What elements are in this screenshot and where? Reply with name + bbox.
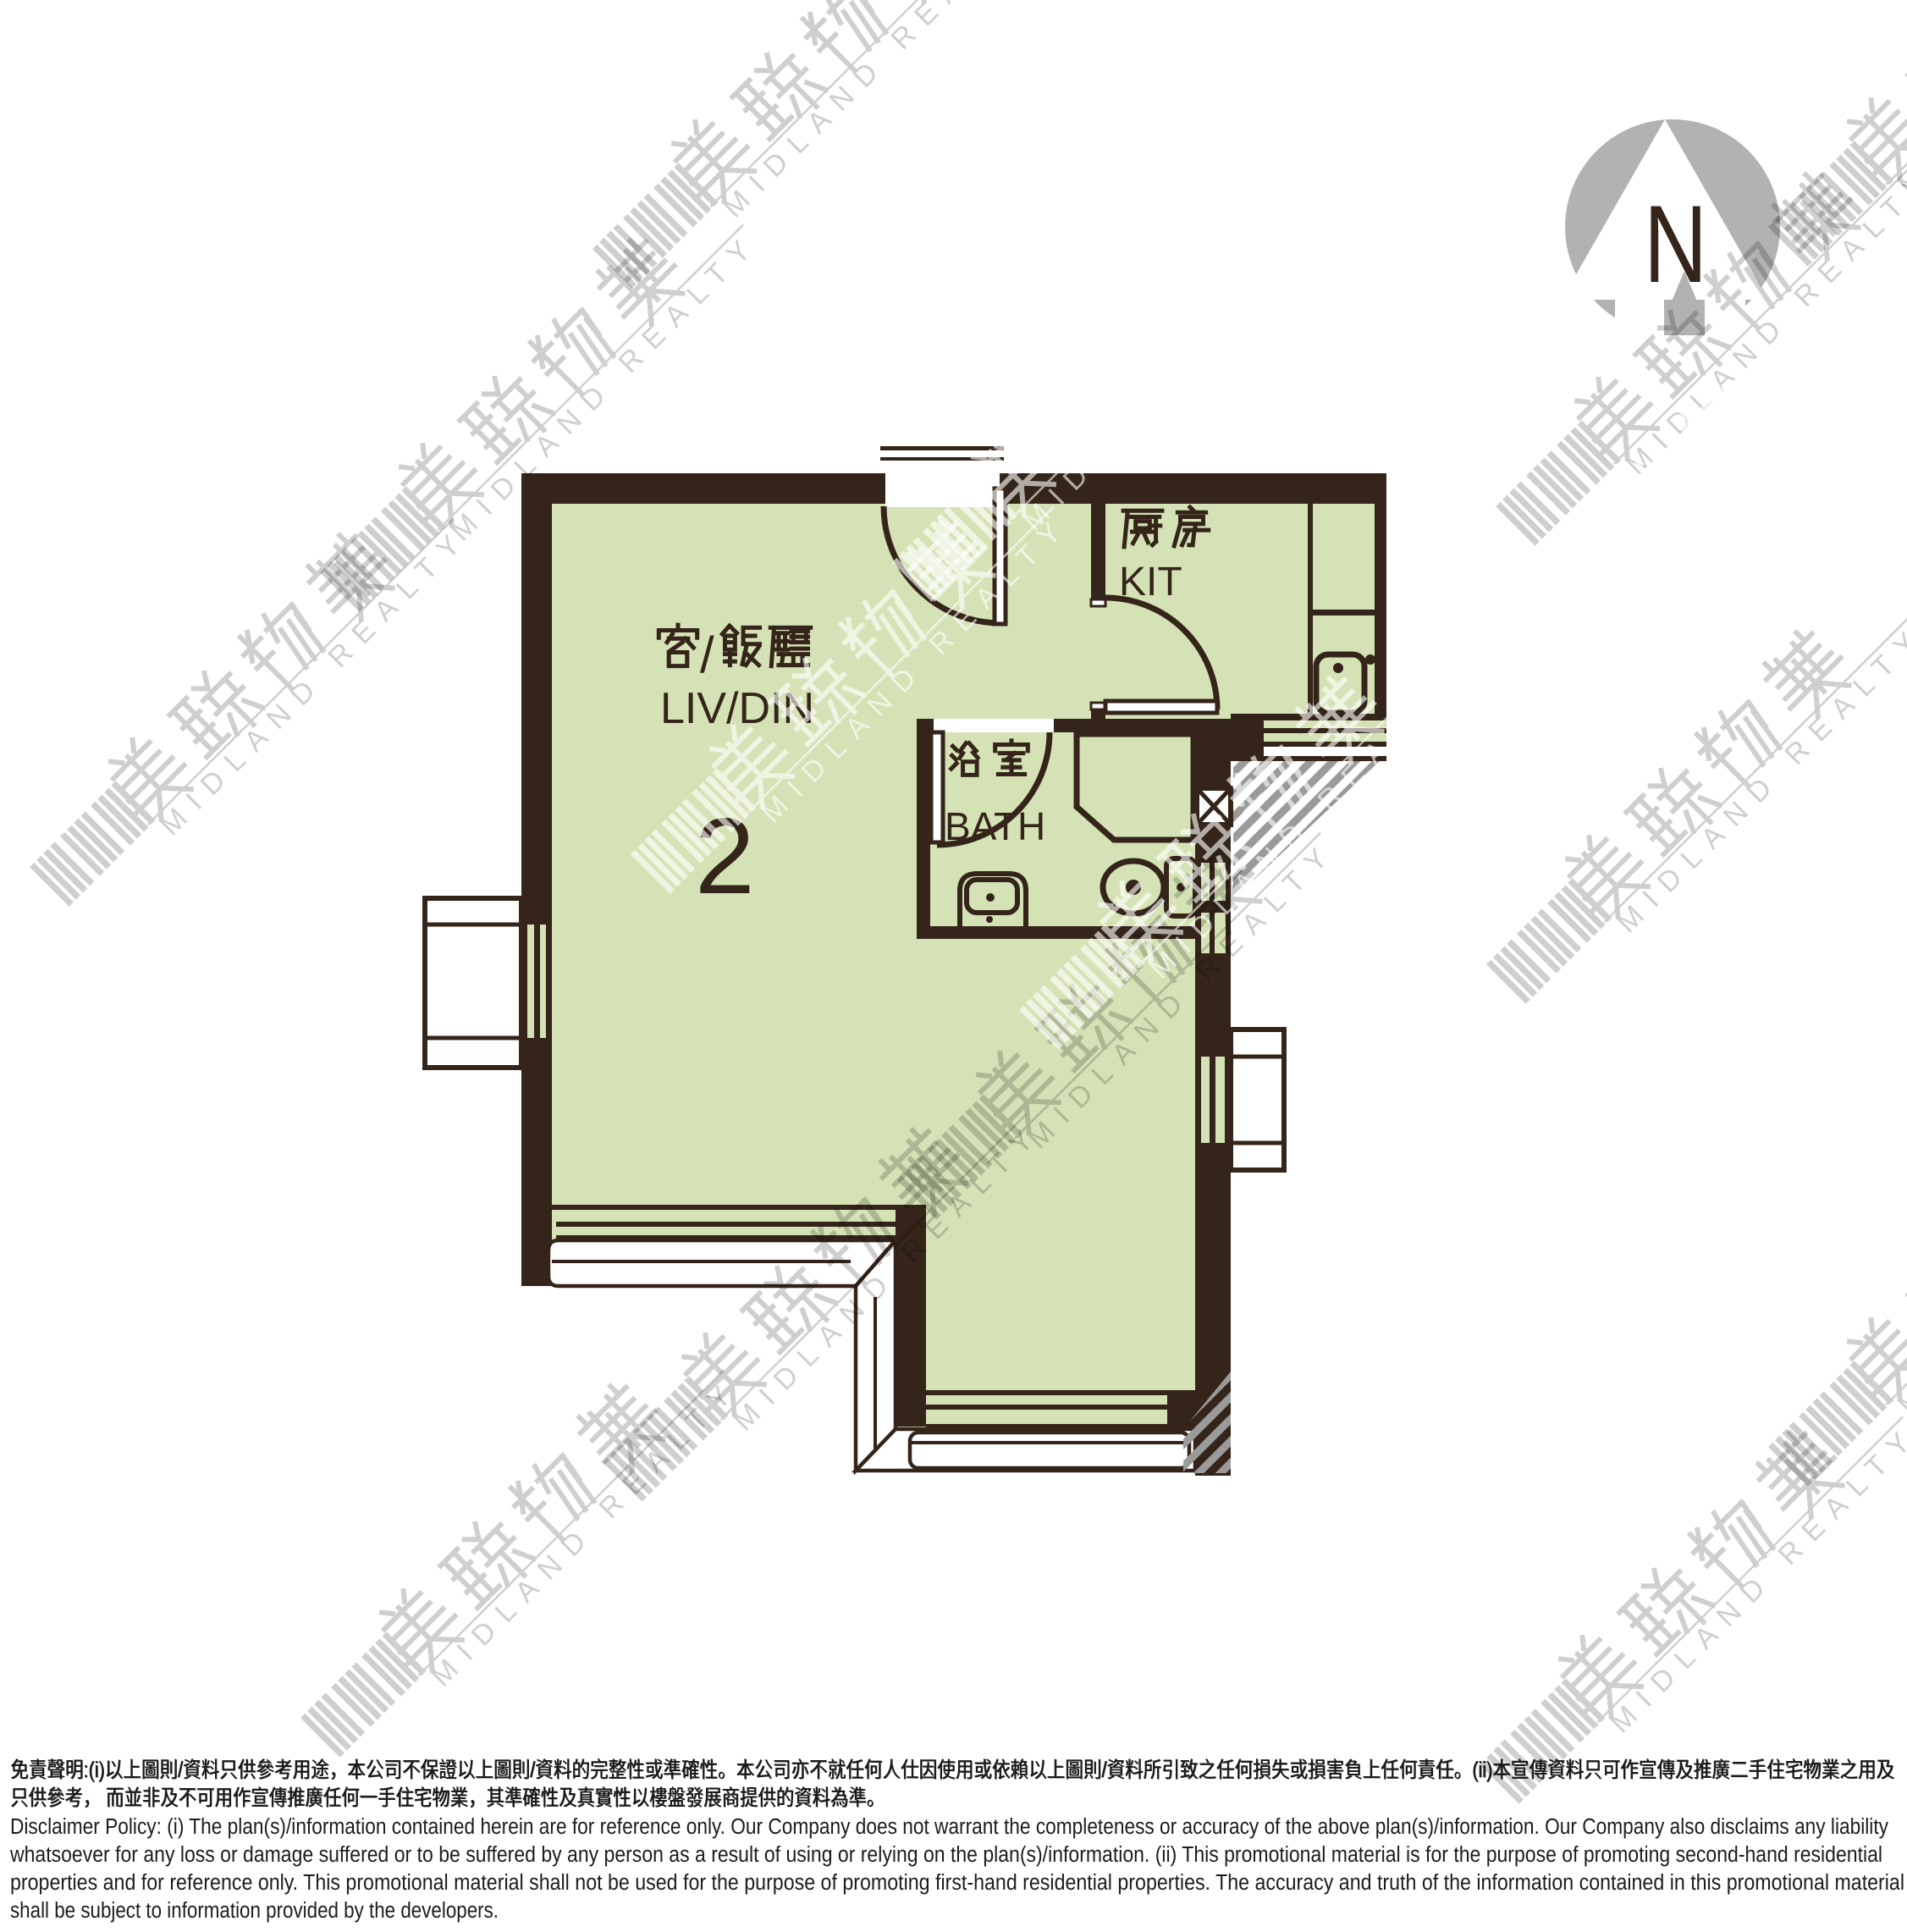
svg-text:MIDLAND REALTY: MIDLAND REALTY xyxy=(1611,617,1907,939)
svg-text:properties and for reference o: properties and for reference only. This … xyxy=(10,1871,1904,1895)
svg-text:MIDLAND REALTY: MIDLAND REALTY xyxy=(1604,1417,1907,1739)
svg-text:MIDLAND REALTY: MIDLAND REALTY xyxy=(717,0,1039,224)
svg-text:MIDLAND REALTY: MIDLAND REALTY xyxy=(154,520,476,842)
svg-text:Disclaimer Policy: (i) The pla: Disclaimer Policy: (i) The plan(s)/infor… xyxy=(10,1815,1888,1839)
svg-text:/: / xyxy=(700,627,714,683)
svg-text:KIT: KIT xyxy=(1119,560,1182,604)
svg-text:N: N xyxy=(1644,182,1707,306)
svg-text:whatsoever for any loss or dam: whatsoever for any loss or damage suffer… xyxy=(9,1843,1882,1867)
svg-text:BATH: BATH xyxy=(945,804,1045,848)
svg-text:MIDLAND REALTY: MIDLAND REALTY xyxy=(1893,0,1907,201)
svg-text:只供參考， 而並非及不可用作宣傳推廣任何一手住宅物業，其準確: 只供參考， 而並非及不可用作宣傳推廣任何一手住宅物業，其準確性及真實性以樓盤發展… xyxy=(11,1787,885,1811)
svg-text:免責聲明:(i)以上圖則/資料只供參考用途，本公司不保證以上: 免責聲明:(i)以上圖則/資料只供參考用途，本公司不保證以上圖則/資料的完整性或… xyxy=(11,1759,1895,1783)
svg-text:shall be subject to informatio: shall be subject to information provided… xyxy=(10,1899,499,1923)
